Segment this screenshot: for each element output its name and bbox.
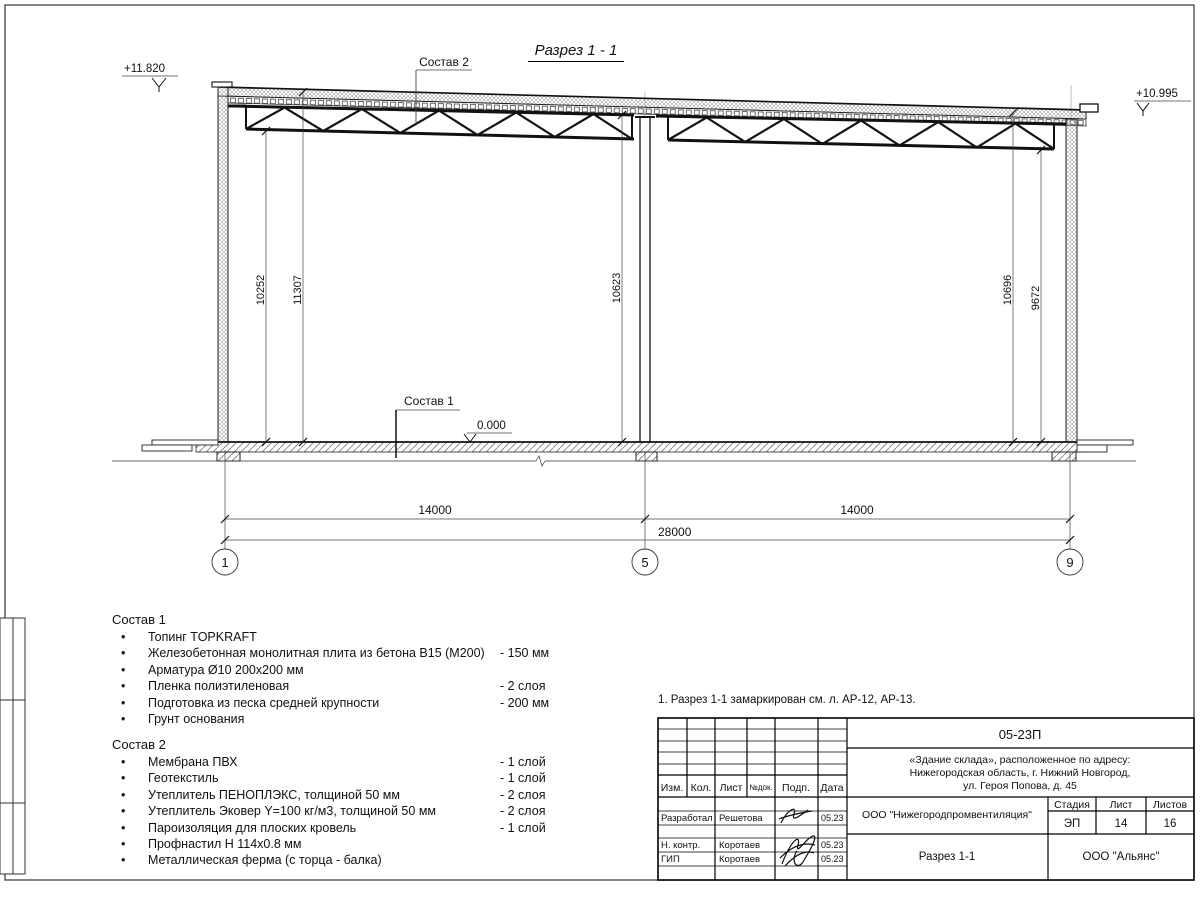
list-item: •Утеплитель Эковер Y=100 кг/м3, толщиной… [112,803,582,819]
ground-line [112,456,1136,466]
row-gip-name: Коротаев [719,854,760,865]
row-developer-date: 05.23 [821,813,844,823]
row-gip-role: ГИП [661,854,680,865]
axis-label-9: 9 [1066,555,1073,570]
sostav-1-heading: Состав 1 [112,611,582,628]
list-item: •Геотекстиль- 1 слой [112,770,582,786]
elevation-floor-value: 0.000 [477,420,506,432]
footings [217,452,1076,461]
drawing-note: 1. Разрез 1-1 замаркирован см. л. АР-12,… [658,694,916,706]
object-line-2: Нижегородская область, г. Нижний Новгоро… [910,767,1131,779]
elevation-arrow-icon [464,434,476,442]
list-item: •Пароизоляция для плоских кровель- 1 сло… [112,820,582,836]
object-line-1: «Здание склада», расположенное по адресу… [910,754,1131,766]
list-item: •Утеплитель ПЕНОПЛЭКС, толщиной 50 мм- 2… [112,787,582,803]
wall-right [1066,119,1077,442]
company-name: ООО "Альянс" [1083,851,1160,863]
sostav-2-list: Состав 2 •Мембрана ПВХ- 1 слой •Геотекст… [112,736,582,869]
sostav-2-heading: Состав 2 [112,736,582,753]
col-ndok: №док. [749,783,772,792]
stage-value: ЭП [1064,818,1081,830]
col-podp: Подп. [782,782,810,794]
list-item: •Арматура Ø10 200х200 мм [112,662,582,678]
list-item: •Грунт основания [112,711,582,727]
org-name: ООО "Нижегородпромвентиляция" [862,809,1032,821]
footing-right [1052,452,1076,461]
row-developer-role: Разработал [661,813,713,824]
dim-height-10623: 10623 [611,273,623,304]
row-ncontr-role: Н. контр. [661,840,700,851]
sheet-value: 14 [1115,818,1128,830]
row-gip-date: 05.23 [821,854,844,864]
axis-label-5: 5 [641,555,648,570]
apron-right [1077,440,1133,452]
list-item: •Профнастил Н 114х0.8 мм [112,836,582,852]
sheet-label: Лист [1110,799,1133,811]
elevation-mark-left: +11.820 [122,63,178,92]
bullet-icon: • [112,695,148,711]
bullet-icon: • [112,754,148,770]
project-code: 05-23П [999,727,1042,742]
col-kol: Кол. [691,782,712,794]
callout-sostav-1-label: Состав 1 [404,394,454,408]
column-middle [635,117,655,442]
dim-height-9672: 9672 [1030,286,1042,310]
title-block: Изм. Кол. Лист №док. Подп. Дата Разработ… [658,718,1194,880]
row-developer-name: Решетова [719,813,763,824]
list-item: •Пленка полиэтиленовая- 2 слоя [112,678,582,694]
bullet-icon: • [112,852,148,868]
doc-title: Разрез 1-1 [919,851,975,863]
elevation-mark-right: +10.995 [1134,88,1191,116]
elevation-arrow-icon [1137,103,1149,111]
bullet-icon: • [112,662,148,678]
dim-span-right: 14000 [840,503,874,517]
dim-total: 28000 [658,525,692,539]
dim-height-10252: 10252 [255,275,267,306]
bullet-icon: • [112,645,148,661]
sheets-value: 16 [1164,818,1177,830]
sostav-1-list: Состав 1 •Топинг TOPKRAFT •Железобетонна… [112,611,582,727]
left-margin-stamp [0,618,25,874]
sheets-label: Листов [1153,799,1188,811]
col-data: Дата [820,782,843,794]
dim-span-left: 14000 [418,503,452,517]
dim-height-11307: 11307 [292,275,304,305]
list-item: •Мембрана ПВХ- 1 слой [112,754,582,770]
list-item: •Металлическая ферма (с торца - балка) [112,852,582,868]
roof-edge-cap-right [1080,104,1098,112]
bullet-icon: • [112,629,148,645]
bullet-icon: • [112,803,148,819]
drawing-sheet: 10252 11307 10623 10696 9672 14000 14000… [0,0,1200,900]
list-item: •Подготовка из песка средней крупности- … [112,695,582,711]
list-item: •Топинг TOPKRAFT [112,629,582,645]
object-line-3: ул. Героя Попова, д. 45 [963,780,1077,792]
axis-label-1: 1 [221,555,228,570]
row-ncontr-date: 05.23 [821,840,844,850]
elevation-arrow-icon [152,78,166,87]
floor-slab [196,442,1088,452]
footing-middle [636,452,657,461]
bullet-icon: • [112,836,148,852]
row-ncontr-name: Коротаев [719,840,760,851]
col-list: Лист [720,782,743,794]
drawing-title: Разрез 1 - 1 [528,42,624,62]
list-item: •Железобетонная монолитная плита из бето… [112,645,582,661]
stage-label: Стадия [1054,799,1090,811]
elevation-left-value: +11.820 [124,63,165,75]
callout-sostav-2-label: Состав 2 [419,55,469,69]
bullet-icon: • [112,820,148,836]
wall-left [218,87,228,442]
col-izm: Изм. [661,782,684,794]
bullet-icon: • [112,770,148,786]
elevation-mark-floor: 0.000 [464,420,512,442]
bottom-dimensions: 14000 14000 28000 1 5 9 [212,450,1083,575]
footing-left [217,452,240,461]
vertical-dimensions [262,88,1045,446]
bullet-icon: • [112,678,148,694]
bullet-icon: • [112,787,148,803]
elevation-right-value: +10.995 [1136,88,1178,100]
bullet-icon: • [112,711,148,727]
building-section [112,82,1136,466]
parapet-cap-left [212,82,232,87]
dim-height-10696: 10696 [1002,275,1014,306]
